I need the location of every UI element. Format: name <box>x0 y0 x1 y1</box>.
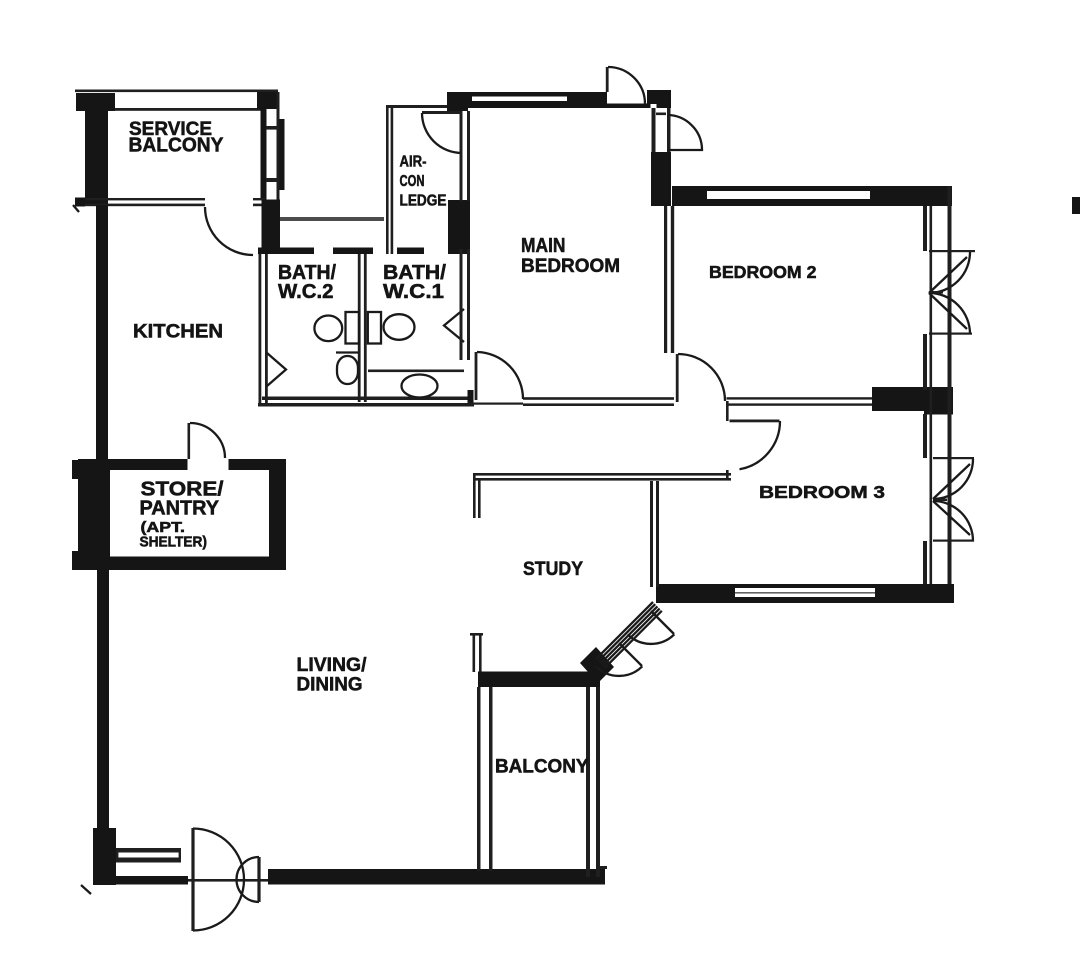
svg-text:BEDROOM 2: BEDROOM 2 <box>709 262 817 282</box>
svg-text:PANTRY: PANTRY <box>140 497 220 520</box>
svg-text:BALCONY: BALCONY <box>129 135 225 157</box>
svg-text:W.C.1: W.C.1 <box>383 281 444 303</box>
svg-text:BALCONY: BALCONY <box>495 756 589 778</box>
svg-text:STUDY: STUDY <box>523 558 583 580</box>
svg-text:SHELTER): SHELTER) <box>140 535 208 551</box>
svg-text:DINING: DINING <box>297 674 363 696</box>
svg-text:W.C.2: W.C.2 <box>278 281 334 303</box>
svg-text:KITCHEN: KITCHEN <box>133 322 223 343</box>
svg-text:CON: CON <box>400 173 425 190</box>
svg-text:BEDROOM: BEDROOM <box>521 255 620 277</box>
svg-text:MAIN: MAIN <box>521 235 566 257</box>
svg-text:AIR-: AIR- <box>400 154 427 171</box>
svg-text:BEDROOM 3: BEDROOM 3 <box>759 482 885 502</box>
svg-text:LEDGE: LEDGE <box>400 193 447 210</box>
